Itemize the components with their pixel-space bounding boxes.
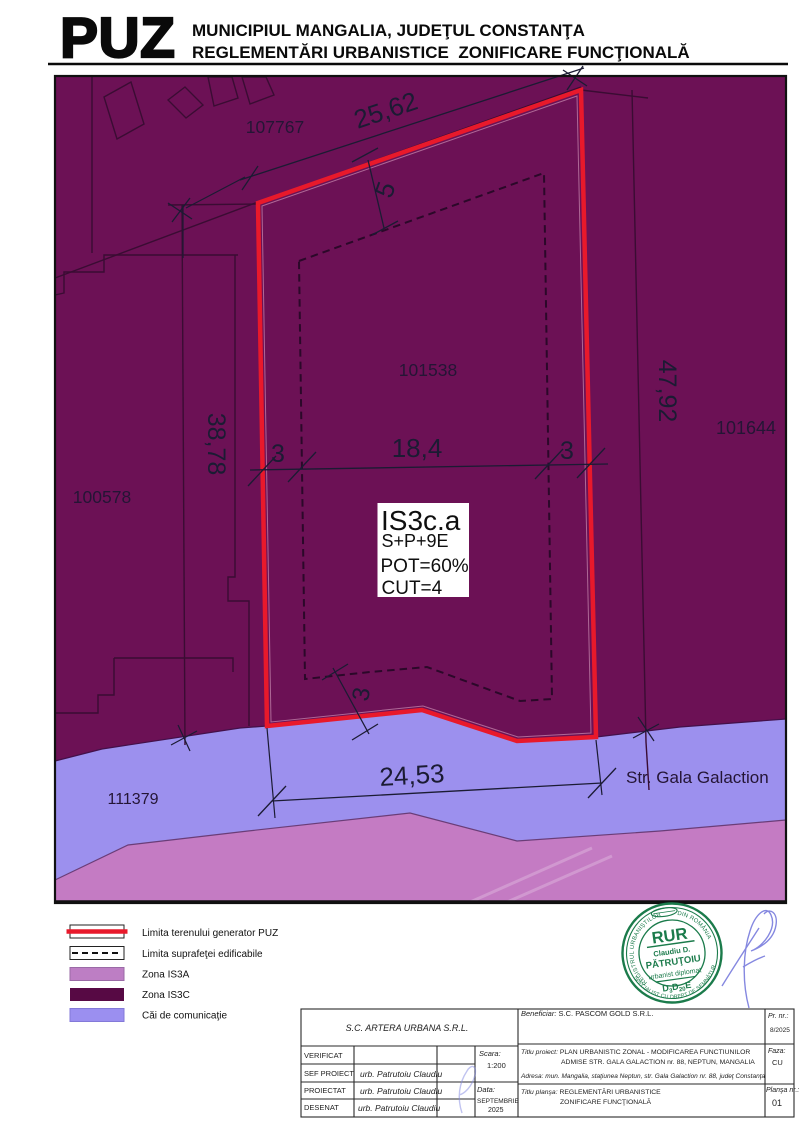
svg-text:VERIFICAT: VERIFICAT bbox=[304, 1051, 343, 1060]
svg-text:CU: CU bbox=[772, 1058, 783, 1067]
svg-text:Zona IS3C: Zona IS3C bbox=[142, 990, 190, 1001]
svg-text:Pr. nr.:: Pr. nr.: bbox=[768, 1013, 789, 1020]
svg-text:RUR: RUR bbox=[651, 925, 689, 948]
svg-text:Faza:: Faza: bbox=[768, 1048, 786, 1055]
svg-text:ADMISE STR. GALA GALACTION nr.: ADMISE STR. GALA GALACTION nr. 88, NEPTU… bbox=[561, 1059, 755, 1066]
svg-text:8/2025: 8/2025 bbox=[770, 1027, 790, 1034]
svg-text:Data:: Data: bbox=[477, 1085, 495, 1094]
svg-text:Titlu planşa: REGLEMENTĂRI UR: Titlu planşa: REGLEMENTĂRI URBANISTICE bbox=[521, 1087, 661, 1096]
svg-text:Zona IS3A: Zona IS3A bbox=[142, 970, 190, 981]
svg-text:PUZ: PUZ bbox=[60, 6, 176, 70]
svg-text:Adresa: mun. Mangalia, staţiu: Adresa: mun. Mangalia, staţiunea Neptun,… bbox=[520, 1073, 766, 1080]
svg-text:ZONIFICARE FUNCŢIONALĂ: ZONIFICARE FUNCŢIONALĂ bbox=[560, 1097, 651, 1106]
svg-text:2025: 2025 bbox=[488, 1107, 504, 1114]
svg-text:107767: 107767 bbox=[246, 117, 304, 137]
svg-text:18,4: 18,4 bbox=[392, 433, 443, 463]
svg-text:47,92: 47,92 bbox=[653, 360, 681, 423]
svg-text:Limita suprafeţei edificabile: Limita suprafeţei edificabile bbox=[142, 949, 263, 960]
svg-text:24,53: 24,53 bbox=[379, 758, 446, 792]
svg-text:Scara:: Scara: bbox=[479, 1049, 501, 1058]
svg-text:urb. Patrutoiu Claudiu: urb. Patrutoiu Claudiu bbox=[360, 1086, 442, 1096]
svg-text:PROIECTAT: PROIECTAT bbox=[304, 1086, 346, 1095]
svg-text:POT=60%: POT=60% bbox=[381, 556, 469, 577]
svg-text:100578: 100578 bbox=[73, 487, 131, 507]
svg-text:urb. Patrutoiu Claudiu: urb. Patrutoiu Claudiu bbox=[360, 1069, 442, 1079]
svg-text:Limita terenului generator PUZ: Limita terenului generator PUZ bbox=[142, 928, 278, 939]
svg-text:SEF PROIECT: SEF PROIECT bbox=[304, 1069, 354, 1078]
svg-text:urb. Patrutoiu Claudiu: urb. Patrutoiu Claudiu bbox=[358, 1103, 440, 1113]
svg-text:101644: 101644 bbox=[716, 418, 776, 438]
svg-text:101538: 101538 bbox=[399, 360, 457, 380]
svg-text:01: 01 bbox=[772, 1098, 782, 1108]
svg-text:Căi de comunicaţie: Căi de comunicaţie bbox=[142, 1011, 227, 1022]
svg-text:REGLEMENTĂRI URBANISTICE ZONI: REGLEMENTĂRI URBANISTICE ZONIFICARE FUNC… bbox=[192, 43, 690, 62]
svg-text:DESENAT: DESENAT bbox=[304, 1103, 339, 1112]
svg-text:Titlu proiect: PLAN URBANISTI: Titlu proiect: PLAN URBANISTIC ZONAL - M… bbox=[521, 1049, 750, 1056]
svg-text:1:200: 1:200 bbox=[487, 1061, 506, 1070]
svg-text:S.C. ARTERA URBANA S.R.L.: S.C. ARTERA URBANA S.R.L. bbox=[346, 1023, 469, 1033]
svg-text:S+P+9E: S+P+9E bbox=[382, 531, 449, 551]
svg-text:111379: 111379 bbox=[107, 791, 158, 808]
svg-text:CUT=4: CUT=4 bbox=[382, 578, 443, 599]
svg-text:Beneficiar: S.C. PASCOM GOLD: Beneficiar: S.C. PASCOM GOLD S.R.L. bbox=[521, 1009, 653, 1018]
svg-text:3: 3 bbox=[560, 437, 574, 465]
svg-text:Str. Gala Galaction: Str. Gala Galaction bbox=[626, 768, 769, 787]
svg-text:SEPTEMBRIE: SEPTEMBRIE bbox=[477, 1098, 520, 1105]
svg-text:38,78: 38,78 bbox=[202, 413, 230, 476]
svg-text:3: 3 bbox=[271, 440, 285, 468]
svg-text:MUNICIPIUL MANGALIA, JUDEŢUL C: MUNICIPIUL MANGALIA, JUDEŢUL CONSTANŢA bbox=[192, 21, 585, 40]
svg-text:Planşa nr.:: Planşa nr.: bbox=[766, 1087, 799, 1094]
